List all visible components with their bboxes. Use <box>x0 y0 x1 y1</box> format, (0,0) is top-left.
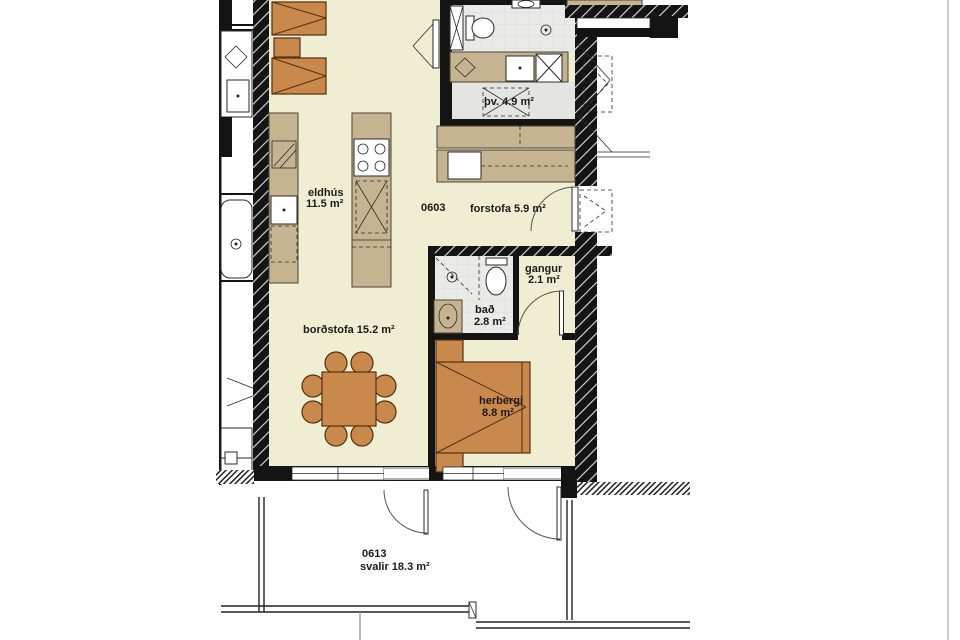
balcony <box>221 497 690 640</box>
label-bad: bað <box>475 304 495 316</box>
dining-chair <box>351 352 373 374</box>
wardrobe-cabinet <box>448 152 481 179</box>
label-herbergi-area: 8.8 m² <box>482 407 514 419</box>
balcony-railing-left <box>259 497 264 612</box>
dining-chair <box>374 401 396 423</box>
door-leaf <box>433 20 439 68</box>
sofa <box>272 2 326 35</box>
laundry-bottom-wall <box>440 119 575 126</box>
floor-plan-page: eldhús 11.5 m² 0603 forstofa 5.9 m² þv. … <box>0 0 960 640</box>
washbasin <box>512 0 540 8</box>
corridor-lines <box>597 152 650 157</box>
toilet <box>486 267 506 295</box>
drain-dot <box>545 29 548 32</box>
toilet <box>472 18 494 38</box>
wall-chunk <box>650 16 678 38</box>
right-exterior-wall <box>575 0 597 490</box>
bath-gangur-divider <box>513 256 519 335</box>
bedroom-door-leaf <box>560 291 564 335</box>
entrance-door-leaf <box>572 187 578 231</box>
dining-chair <box>325 424 347 446</box>
label-herbergi: herbergi <box>479 395 523 407</box>
ottoman <box>274 38 300 57</box>
wall-chunk <box>221 117 232 157</box>
drain-dot <box>519 67 522 70</box>
cooktop <box>354 139 389 176</box>
wall-line <box>221 24 253 26</box>
balcony-railing-bottom-right <box>476 622 690 628</box>
balcony-door-leaf <box>424 490 428 534</box>
facade <box>292 467 561 540</box>
bath-bottom-wall <box>428 333 518 340</box>
dining-table <box>322 372 376 426</box>
door-opening <box>504 467 561 480</box>
balcony-railing-right <box>567 500 572 620</box>
wall-bar <box>577 28 653 37</box>
label-bad-area: 2.8 m² <box>474 316 506 328</box>
drain-dot <box>447 317 450 320</box>
label-svalir: svalir 18.3 m² <box>360 561 430 573</box>
floor-plan: eldhús 11.5 m² 0603 forstofa 5.9 m² þv. … <box>0 0 960 640</box>
neighbor-cabinet-small <box>225 452 237 464</box>
top-wall <box>440 0 567 5</box>
label-unit-number: 0603 <box>421 202 445 214</box>
dining-chair <box>351 424 373 446</box>
wall-corner <box>561 480 577 498</box>
bedroom-left-wall <box>428 340 435 466</box>
balcony-door-leaf <box>557 487 561 540</box>
wall-line <box>221 193 253 195</box>
drain-dot <box>235 243 238 246</box>
balcony-door-arc <box>508 487 560 539</box>
dining-chair <box>325 352 347 374</box>
wall-line <box>221 29 253 31</box>
label-eldhus-area: 11.5 m² <box>306 198 344 210</box>
label-balcony-number: 0613 <box>362 548 386 560</box>
wardrobe <box>437 126 575 148</box>
label-forstofa: forstofa 5.9 m² <box>470 203 546 215</box>
balcony-door-arc <box>384 490 427 533</box>
drain-dot <box>451 276 454 279</box>
left-insulation-band <box>216 470 254 484</box>
wall-line <box>221 280 253 282</box>
drain-dot <box>283 209 286 212</box>
bath-top-wall <box>428 246 612 256</box>
label-laundry: þv. 4.9 m² <box>484 96 534 108</box>
drain-dot <box>237 95 240 98</box>
dining-chair <box>302 401 324 423</box>
toilet-tank <box>486 258 507 265</box>
dining-chair <box>302 375 324 397</box>
label-bordstofa: borðstofa 15.2 m² <box>303 324 395 336</box>
label-gangur-area: 2.1 m² <box>528 274 560 286</box>
left-exterior-wall <box>253 0 269 480</box>
right-insulation-band <box>577 482 690 495</box>
dining-chair <box>374 375 396 397</box>
door-opening <box>384 467 429 480</box>
sofa <box>272 58 326 94</box>
